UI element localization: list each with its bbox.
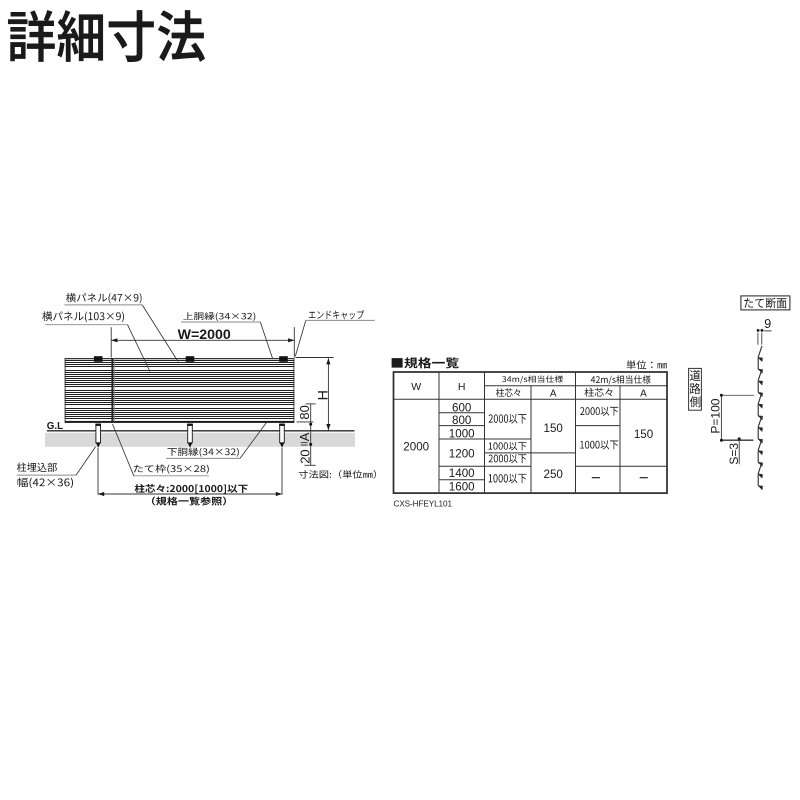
svg-text:800: 800 xyxy=(452,414,471,427)
svg-text:CXS-HFEYL101: CXS-HFEYL101 xyxy=(394,499,453,508)
svg-text:9: 9 xyxy=(764,317,771,331)
svg-text:W: W xyxy=(411,381,421,393)
svg-text:2000: 2000 xyxy=(403,440,429,453)
svg-text:1400: 1400 xyxy=(449,467,475,480)
svg-text:S=3: S=3 xyxy=(727,443,741,465)
svg-text:A: A xyxy=(640,389,647,400)
svg-text:P=100: P=100 xyxy=(708,398,722,433)
svg-text:1000: 1000 xyxy=(449,427,475,440)
svg-text:H: H xyxy=(316,390,332,400)
svg-text:600: 600 xyxy=(452,401,471,414)
svg-text:H: H xyxy=(458,381,466,393)
svg-text:80: 80 xyxy=(297,405,312,419)
svg-text:250: 250 xyxy=(544,468,563,481)
svg-text:A: A xyxy=(550,389,557,400)
svg-text:1200: 1200 xyxy=(449,448,475,461)
svg-text:A: A xyxy=(297,432,312,441)
svg-text:150: 150 xyxy=(634,428,653,441)
svg-text:W=2000: W=2000 xyxy=(178,327,231,343)
svg-text:20: 20 xyxy=(298,449,313,463)
svg-text:150: 150 xyxy=(544,422,563,435)
svg-text:1600: 1600 xyxy=(449,481,475,494)
